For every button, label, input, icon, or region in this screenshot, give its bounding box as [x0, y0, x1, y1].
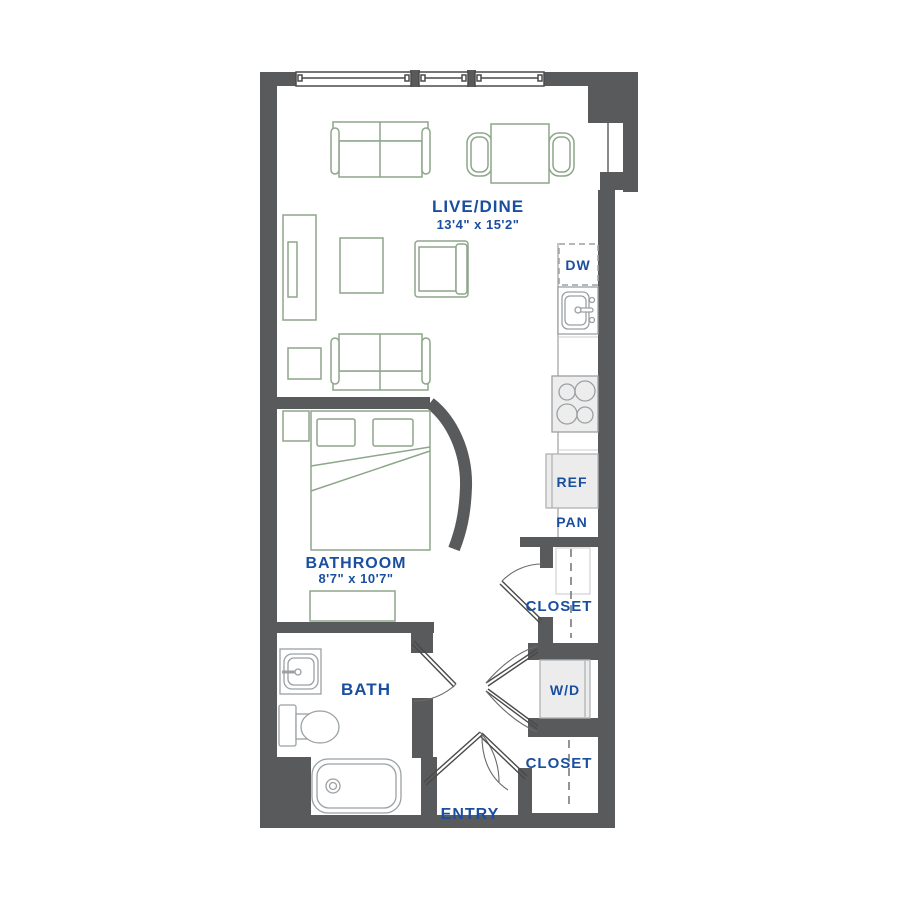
dining-table-icon [467, 124, 574, 183]
wd-door-leaf-bottom [486, 691, 537, 729]
toilet-icon [279, 705, 339, 746]
kitchen-sink-icon [558, 287, 598, 334]
window-stop [405, 75, 409, 81]
sofa-icon [331, 334, 430, 390]
wall-left [260, 72, 277, 828]
wall-bedroom-top [277, 397, 430, 409]
bathroom-label: BATHROOM [305, 555, 406, 572]
window-2 [419, 72, 468, 86]
live-dine-label: LIVE/DINE [432, 197, 524, 216]
washer-dryer-label: W/D [550, 682, 580, 698]
bath-door-leaf [414, 641, 456, 684]
wall-bath-right-lower [412, 698, 433, 758]
dresser-icon [310, 591, 395, 621]
wall-wd-bottom-band [528, 718, 598, 737]
bathtub-icon [312, 759, 401, 813]
window-3 [475, 72, 544, 86]
window-stop [477, 75, 481, 81]
ottoman-icon [340, 238, 383, 293]
window-1 [296, 72, 411, 86]
entry-label: ENTRY [441, 806, 500, 823]
wall-right-step [600, 172, 638, 190]
refrigerator-label: REF [557, 474, 588, 490]
bedroom-furniture [283, 411, 430, 621]
armchair-icon [415, 241, 468, 297]
closet-shelf [556, 548, 590, 594]
sofa-icon [331, 122, 430, 177]
wd-door-leaf-top [488, 652, 538, 686]
bathroom-dimensions: 8'7" x 10'7" [318, 571, 393, 586]
floor-plan-drawing: LIVE/DINE 13'4" x 15'2" BATHROOM 8'7" x … [0, 0, 900, 900]
wall-bottom-right-block [518, 813, 615, 828]
living-room-furniture [283, 122, 574, 390]
wall-closet-bottom-stub [538, 617, 553, 645]
window-stop [298, 75, 302, 81]
nightstand-icon [283, 411, 309, 441]
wall-closet-top-stub [540, 547, 553, 568]
media-console-icon [283, 215, 316, 320]
side-table-icon [288, 348, 321, 379]
closet-upper-door-swing [502, 564, 542, 581]
wall-entry-hinge-block [421, 757, 437, 817]
live-dine-dimensions: 13'4" x 15'2" [437, 217, 520, 232]
windows [296, 72, 544, 86]
closet-upper-label: CLOSET [526, 598, 593, 615]
wall-bed-bath [277, 622, 434, 633]
floor-plan-page: LIVE/DINE 13'4" x 15'2" BATHROOM 8'7" x … [0, 0, 900, 900]
wd-door-leaf-top [486, 649, 537, 683]
wall-bottom-left-chase [277, 757, 311, 817]
vanity-sink-icon [280, 649, 321, 694]
window-stop [538, 75, 542, 81]
kitchen [546, 243, 598, 537]
window-stop [421, 75, 425, 81]
wall-closet-front-band [520, 537, 598, 547]
stove-icon [552, 376, 598, 432]
wd-door-leaf-bottom [488, 689, 538, 726]
closet-lower-door-leaf [480, 736, 525, 779]
wall-top-left-stub [260, 72, 300, 86]
wall-wd-top-band [528, 643, 598, 660]
bed-icon [311, 411, 430, 550]
pantry-label: PAN [556, 514, 588, 530]
wall-curved-partition [430, 403, 466, 549]
closet-lower-label: CLOSET [526, 755, 593, 772]
wall-right-main [598, 190, 615, 828]
bath-label: BATH [341, 680, 391, 699]
window-stop [462, 75, 466, 81]
dishwasher-label: DW [565, 257, 590, 273]
